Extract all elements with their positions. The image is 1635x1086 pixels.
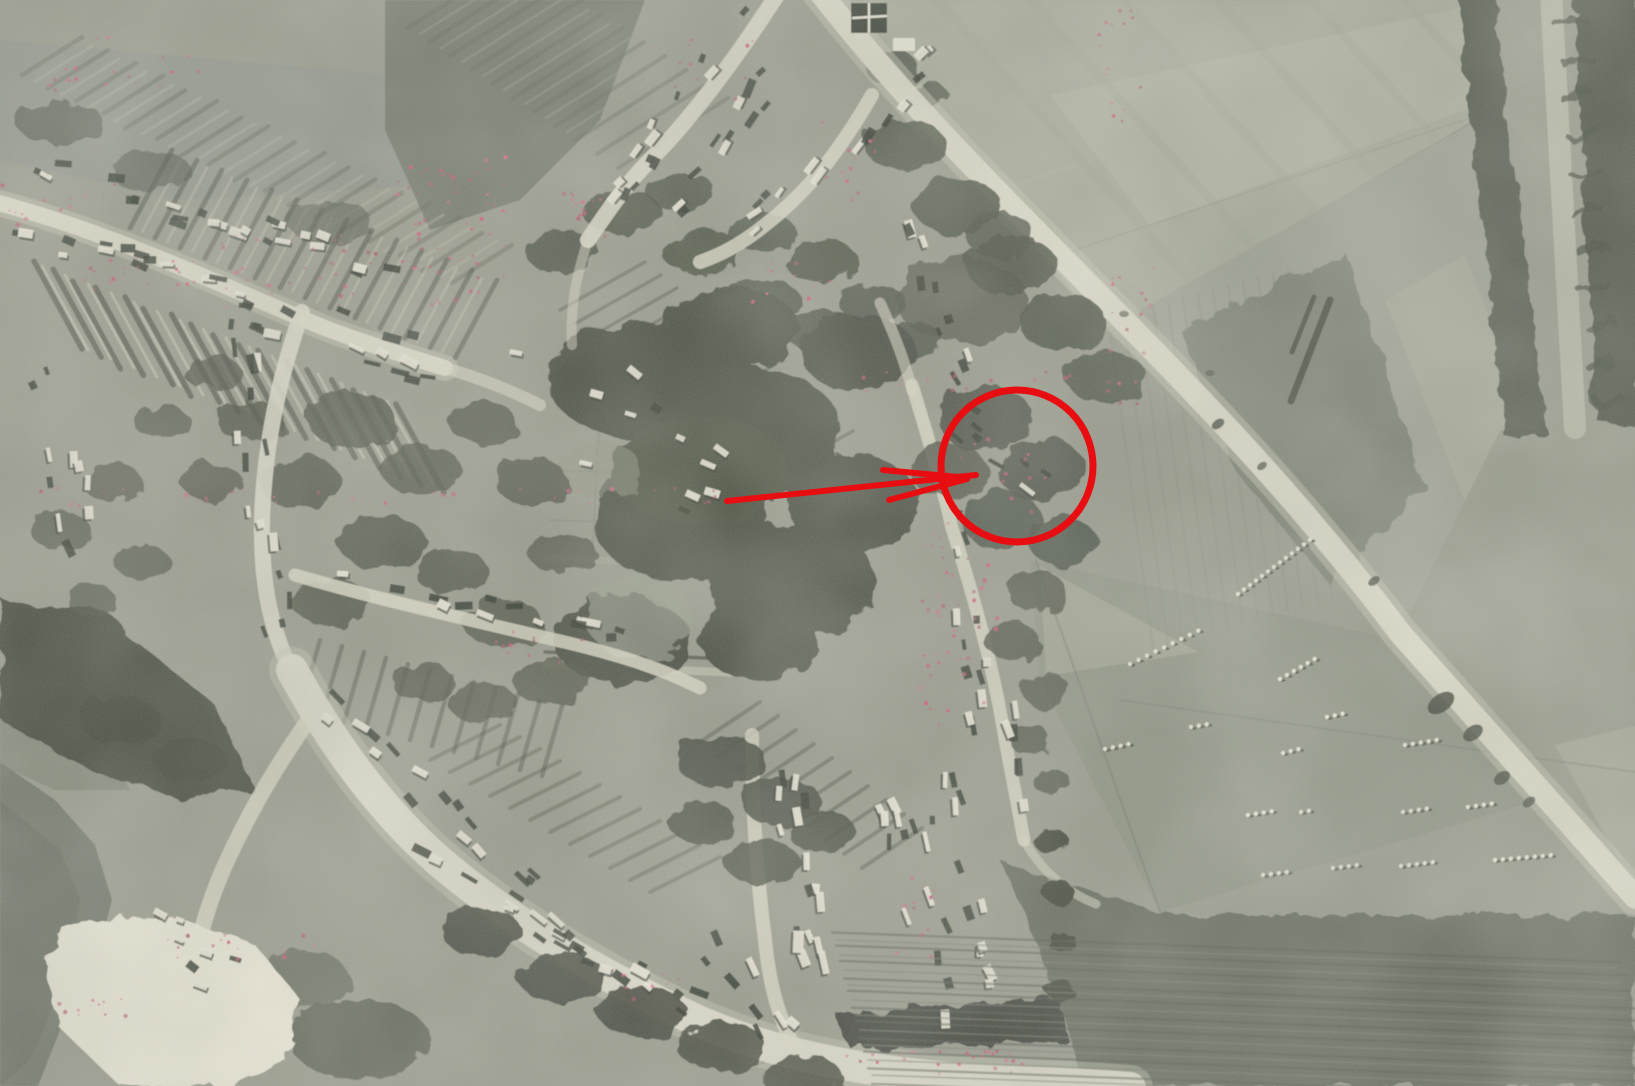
aerial-photo: [0, 0, 1635, 1086]
aerial-photo-canvas: [0, 0, 1635, 1086]
film-grain-overlay: [0, 0, 1635, 1086]
